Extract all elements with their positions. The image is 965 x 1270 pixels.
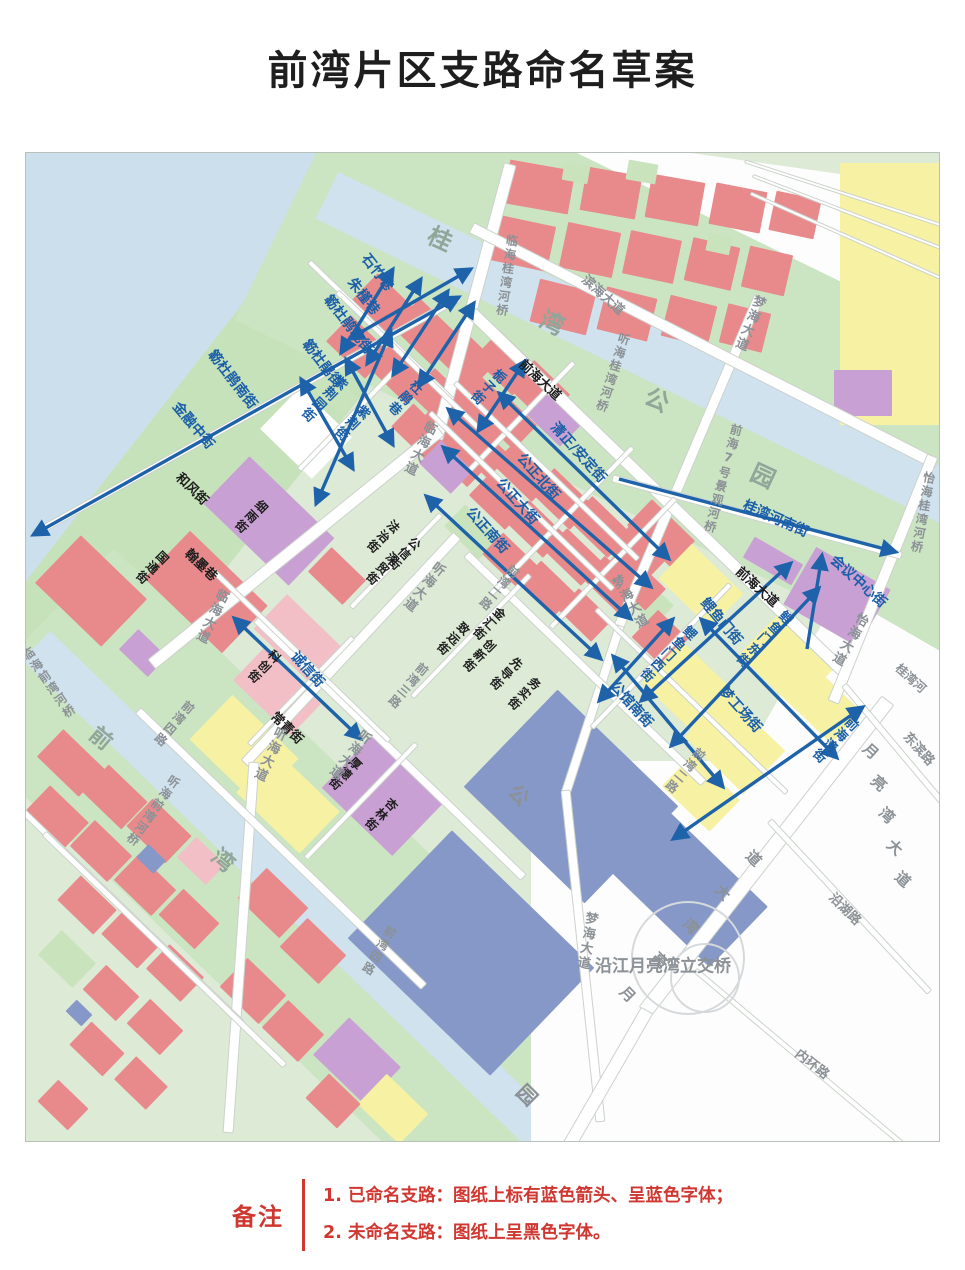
map-canvas: 石竹巷朱槿巷簕杜鹃北街簕杜鹃街簕杜鹃南街金融中街紫荆园街紫荆街杜鹃巷栀子街清正/… — [25, 152, 940, 1142]
page-title: 前湾片区支路命名草案 — [0, 38, 965, 96]
city-block — [38, 930, 96, 988]
notes-section: 备注 1. 已命名支路：图纸上标有蓝色箭头、呈蓝色字体； 2. 未命名支路：图纸… — [0, 1178, 965, 1252]
city-block — [114, 1056, 168, 1110]
note-item-named: 1. 已命名支路：图纸上标有蓝色箭头、呈蓝色字体； — [323, 1178, 733, 1215]
notes-title: 备注 — [232, 1197, 284, 1232]
city-block — [127, 999, 184, 1055]
note-item-unnamed: 2. 未命名支路：图纸上呈黑色字体。 — [323, 1215, 733, 1252]
city-block — [37, 1080, 88, 1131]
city-block — [69, 1022, 124, 1077]
notes-divider — [302, 1179, 305, 1251]
city-block — [66, 1000, 93, 1027]
